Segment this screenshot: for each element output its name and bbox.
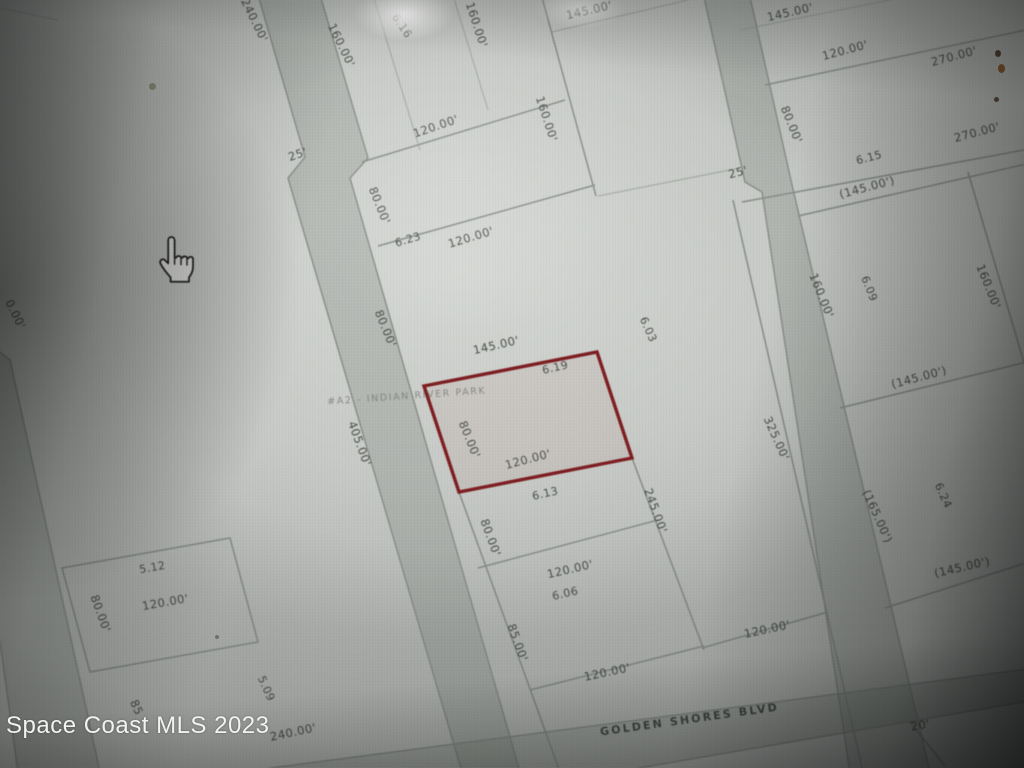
parcel-boundary-line <box>0 8 58 20</box>
parcel-number: 6.23 <box>393 230 422 250</box>
parcel-number: 6.03 <box>637 315 660 344</box>
parcel-boundary-line <box>362 100 565 162</box>
hand-cursor-icon <box>160 237 193 282</box>
dimension-label: 160.00' <box>533 94 561 143</box>
parcel-number: 5.09 <box>255 674 278 703</box>
dimension-label: 120.00' <box>820 37 869 63</box>
dimension-label: 0.00' <box>2 297 28 331</box>
dimension-label: 20' <box>910 716 931 733</box>
dimension-label: (145.00') <box>890 363 949 391</box>
dimension-label: 80.00' <box>87 593 114 635</box>
dimension-label: 80.00' <box>366 185 394 226</box>
dimension-label: 145.00' <box>472 333 521 357</box>
dimension-label: 85.00' <box>504 622 531 664</box>
parcel-number: 6.13 <box>531 484 560 503</box>
screen-photo: 240.00'160.00'6.16160.00'145.00'160.00'1… <box>0 0 1024 768</box>
dimension-label: (145.00') <box>838 173 897 201</box>
road-band <box>0 316 100 768</box>
subject-parcel-outline[interactable] <box>424 352 632 492</box>
dimension-label: 245.00' <box>641 486 670 535</box>
dimension-label: 160.00' <box>973 262 1004 311</box>
dimension-label: 270.00' <box>952 119 1001 145</box>
dimension-label: 120.00' <box>141 591 190 613</box>
parcel-number: 6.09 <box>858 274 880 303</box>
parcel-boundary-line <box>632 458 704 650</box>
parcel-number: 6.24 <box>932 481 955 510</box>
parcel-number: 6.16 <box>389 11 415 40</box>
parcel-boundary-line <box>598 168 740 196</box>
dimension-label: 270.00' <box>929 43 978 69</box>
plat-map-canvas[interactable]: 240.00'160.00'6.16160.00'145.00'160.00'1… <box>0 0 1024 768</box>
parcel-number: 6.06 <box>551 584 580 603</box>
dimension-label: 120.00' <box>411 112 460 141</box>
parcel-number: 5.12 <box>138 559 166 576</box>
dimension-label: 120.00' <box>743 617 792 640</box>
parcel-number: 6.15 <box>855 148 884 167</box>
dimension-label: 120.00' <box>446 224 495 251</box>
mls-watermark: Space Coast MLS 2023 <box>6 712 270 740</box>
parcel-boundary-line <box>478 520 658 568</box>
dimension-label: 240.00' <box>269 720 318 743</box>
dimension-label: 120.00' <box>583 660 632 683</box>
parcel-boundary-line <box>765 28 1024 85</box>
plat-map-drawing: 240.00'160.00'6.16160.00'145.00'160.00'1… <box>0 0 1024 768</box>
dimension-label: 120.00' <box>546 557 595 581</box>
parcel-boundary-line <box>968 172 1024 390</box>
